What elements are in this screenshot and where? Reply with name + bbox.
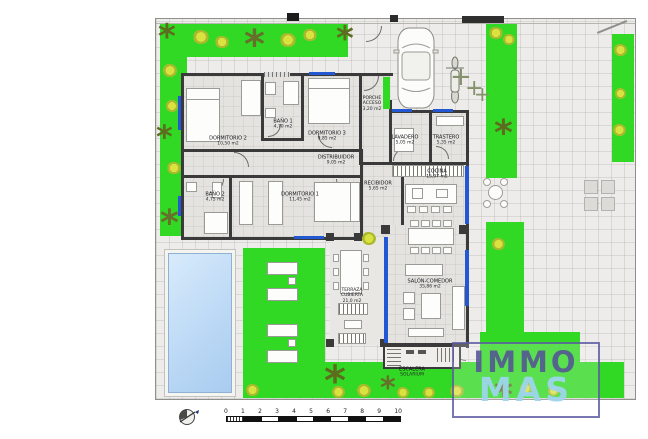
scale-tick: 4 — [292, 408, 296, 415]
cooktop — [412, 188, 423, 199]
scale-tick: 2 — [258, 408, 262, 415]
shelving — [436, 116, 464, 126]
bush-icon — [492, 238, 505, 250]
shower — [283, 81, 299, 105]
scale-tick: 8 — [360, 408, 364, 415]
dining-chair — [432, 220, 441, 227]
potted-plant — [362, 232, 376, 245]
sink — [265, 108, 276, 118]
scale-segment — [279, 417, 296, 421]
scale-segment — [331, 417, 348, 421]
scale-tick: 3 — [275, 408, 279, 415]
room-label-dormitorio1: DORMITORIO 111,45 m2 — [281, 191, 319, 202]
column — [381, 225, 390, 234]
wall-segment — [261, 75, 264, 141]
bistro-chair — [500, 178, 508, 186]
bench — [344, 320, 362, 329]
sofa — [405, 264, 443, 276]
bush-icon — [332, 386, 345, 398]
palm-tree-icon: * — [158, 32, 176, 44]
wardrobe — [241, 80, 261, 116]
wall-segment — [183, 149, 361, 152]
wall-segment — [261, 138, 303, 141]
wardrobe — [268, 181, 283, 225]
dining-table — [408, 228, 454, 245]
palm-tree-icon: * — [494, 128, 513, 141]
column — [326, 339, 334, 347]
window-glass — [465, 250, 469, 306]
stairs — [387, 348, 401, 366]
north-arrow-icon — [176, 406, 206, 428]
scale-tick: 1 — [241, 408, 245, 415]
room-label-terraza: TERRAZA CUBIERTA21,0 m2 — [339, 288, 365, 304]
scale-segment — [349, 417, 366, 421]
paving-slab — [601, 180, 615, 194]
column — [459, 225, 468, 234]
toilet — [186, 182, 197, 192]
kitchen-sink — [436, 189, 448, 198]
bed-pillow — [186, 88, 220, 100]
bush-icon — [613, 124, 626, 136]
wall-segment — [301, 73, 304, 141]
sun-lounger — [267, 288, 298, 301]
stool — [431, 206, 440, 213]
scale-tick: 7 — [343, 408, 347, 415]
bush-icon — [163, 64, 177, 77]
window-glass — [465, 166, 469, 224]
paving-slab — [601, 197, 615, 211]
outdoor-chair — [333, 268, 339, 276]
sliding-glass-door — [384, 237, 388, 343]
room-label-bano2: BAÑO 24,75 m2 — [205, 191, 224, 202]
wall-segment — [429, 112, 432, 162]
conifer-icon: + — [474, 88, 491, 100]
scale-bar — [226, 416, 401, 422]
bush-icon — [357, 384, 371, 397]
scale-tick: 6 — [326, 408, 330, 415]
bush-icon — [246, 384, 259, 396]
floorplan-canvas: * * * * * * * * * — [0, 0, 648, 439]
dining-chair — [421, 220, 430, 227]
stool — [443, 206, 452, 213]
room-label-dormitorio2: DORMITORIO 210,50 m2 — [209, 135, 247, 146]
outdoor-chair — [363, 268, 369, 276]
outdoor-mat — [338, 303, 368, 315]
coffee-table — [421, 293, 441, 319]
wall-segment — [181, 73, 184, 240]
room-label-lavadero: LAVADERO5,05 m2 — [392, 134, 419, 145]
gate-post — [390, 15, 398, 22]
boundary-wall-segment — [462, 16, 504, 23]
scale-tick: 10 — [394, 408, 402, 415]
dining-chair — [410, 247, 419, 254]
room-label-trastero: TRASTERO5,35 m2 — [433, 134, 460, 145]
dining-chair — [432, 247, 441, 254]
vent-grille — [264, 72, 290, 77]
sun-lounger — [267, 350, 298, 363]
armchair — [403, 308, 415, 320]
scale-tick: 9 — [377, 408, 381, 415]
equipment — [406, 350, 414, 354]
dining-chair — [443, 220, 452, 227]
scale-segment — [227, 417, 244, 421]
wardrobe — [239, 181, 253, 225]
outdoor-mat — [338, 333, 366, 344]
wall-segment — [229, 177, 232, 237]
room-label-recibidor: RECIBIDOR5,65 m2 — [364, 180, 392, 191]
scale-tick: 5 — [309, 408, 313, 415]
window-glass — [309, 72, 335, 75]
bush-icon — [167, 162, 181, 174]
bush-icon — [166, 100, 178, 112]
column — [326, 233, 334, 241]
bush-icon — [503, 34, 515, 45]
dining-chair — [443, 247, 452, 254]
swimming-pool — [168, 253, 232, 393]
side-table — [288, 339, 296, 347]
palm-tree-icon: * — [380, 384, 396, 395]
bush-icon — [397, 387, 409, 398]
bistro-chair — [483, 178, 491, 186]
window-glass — [178, 96, 181, 130]
shower — [204, 212, 228, 234]
wall-segment — [183, 175, 363, 178]
scale-tick: 0 — [224, 408, 228, 415]
stool — [407, 206, 416, 213]
scale-segment — [297, 417, 314, 421]
armchair — [403, 292, 415, 304]
immomas-logo: IMMO MAS — [452, 342, 600, 418]
palm-tree-icon: * — [244, 38, 265, 52]
stool — [419, 206, 428, 213]
sun-lounger — [267, 262, 298, 275]
room-label-escalera: ESCALERASOLARIUM — [399, 366, 425, 377]
scale-bar-ticks: 0 1 2 3 4 5 6 7 8 9 10 — [224, 408, 402, 415]
scale-segment — [366, 417, 383, 421]
scale-segment — [244, 417, 261, 421]
bistro-chair — [500, 200, 508, 208]
bush-icon — [215, 36, 229, 48]
dining-chair — [421, 247, 430, 254]
paving-slab — [584, 197, 598, 211]
bush-icon — [303, 29, 317, 41]
dining-chair — [410, 220, 419, 227]
bush-icon — [614, 44, 627, 56]
scale-segment — [384, 417, 400, 421]
bush-icon — [615, 88, 626, 99]
sun-lounger — [267, 324, 298, 337]
bush-icon — [193, 30, 209, 44]
window-glass — [294, 236, 324, 239]
room-label-salon: SALÓN-COMEDOR35,86 m2 — [408, 278, 453, 289]
bush-icon — [489, 27, 503, 39]
paving-slab — [584, 180, 598, 194]
room-label-bano1: BAÑO 14,70 m2 — [273, 118, 292, 129]
room-label-porche: PORCHE ACCESO3,20 m2 — [359, 96, 385, 112]
outdoor-chair — [363, 254, 369, 262]
bed-pillow — [350, 182, 360, 222]
bush-icon — [280, 33, 296, 47]
toilet — [265, 82, 276, 95]
palm-tree-icon: * — [156, 132, 173, 143]
wall-segment — [181, 237, 367, 240]
bistro-chair — [483, 200, 491, 208]
room-label-cocina: COCINA15,97 m2 — [426, 168, 448, 179]
column — [354, 233, 362, 241]
equipment — [418, 350, 426, 354]
window-glass — [178, 196, 181, 216]
wall-segment — [361, 162, 391, 165]
scale-segment — [262, 417, 279, 421]
scale-segment — [314, 417, 331, 421]
bed-pillow — [308, 78, 350, 89]
room-label-dormitorio3: DORMITORIO 39,85 m2 — [308, 130, 346, 141]
sofa — [408, 328, 444, 337]
tv-cabinet — [452, 286, 465, 330]
gate-post — [287, 13, 299, 21]
bistro-table — [488, 185, 503, 200]
bush-icon — [423, 387, 435, 398]
outdoor-chair — [333, 254, 339, 262]
car-topview — [393, 26, 439, 110]
palm-tree-icon: * — [160, 218, 179, 231]
room-label-distribuidor: DISTRIBUIDOR9,05 m2 — [318, 154, 354, 165]
palm-tree-icon: * — [336, 34, 354, 46]
side-table — [288, 277, 296, 285]
